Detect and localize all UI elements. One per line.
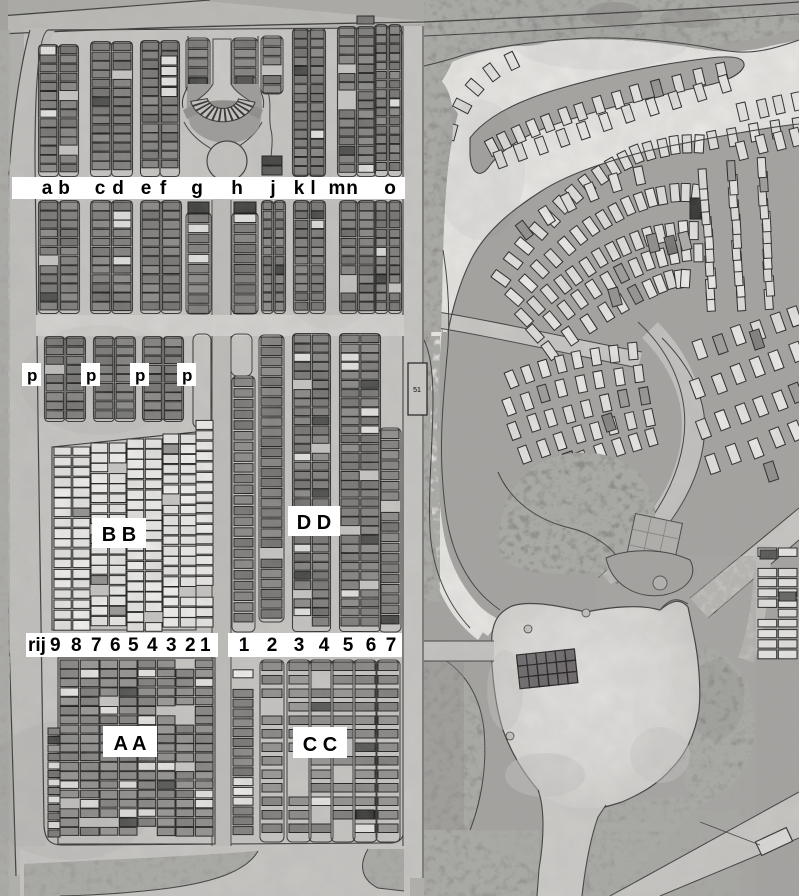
svg-text:c: c	[95, 178, 106, 199]
svg-text:51: 51	[413, 387, 421, 394]
svg-text:D D: D D	[297, 512, 331, 534]
svg-text:n: n	[346, 178, 358, 199]
svg-text:8: 8	[71, 635, 82, 656]
svg-text:6: 6	[366, 635, 377, 656]
svg-text:p: p	[86, 366, 96, 385]
svg-text:3: 3	[294, 635, 305, 656]
svg-text:p: p	[135, 366, 145, 385]
svg-text:2: 2	[267, 635, 278, 656]
svg-text:p: p	[27, 366, 37, 385]
svg-text:A A: A A	[114, 733, 147, 755]
svg-text:a: a	[42, 178, 53, 199]
svg-text:C C: C C	[303, 734, 337, 756]
svg-text:2: 2	[185, 635, 196, 656]
svg-text:6: 6	[110, 635, 121, 656]
svg-text:d: d	[112, 178, 124, 199]
svg-text:e: e	[141, 178, 152, 199]
svg-text:9: 9	[50, 635, 61, 656]
svg-text:rij: rij	[28, 635, 46, 656]
svg-text:7: 7	[91, 635, 102, 656]
svg-text:B B: B B	[102, 524, 136, 546]
svg-text:f: f	[160, 178, 167, 199]
svg-text:4: 4	[147, 635, 158, 656]
svg-text:h: h	[231, 178, 243, 199]
svg-text:m: m	[329, 178, 346, 199]
svg-text:b: b	[58, 178, 70, 199]
svg-text:7: 7	[386, 635, 397, 656]
svg-text:o: o	[384, 178, 396, 199]
svg-text:5: 5	[128, 635, 139, 656]
svg-text:4: 4	[319, 635, 330, 656]
svg-text:1: 1	[239, 635, 250, 656]
svg-text:1: 1	[200, 635, 211, 656]
svg-text:j: j	[269, 178, 275, 199]
svg-text:g: g	[191, 178, 203, 199]
svg-text:k: k	[294, 178, 305, 199]
svg-text:l: l	[310, 178, 315, 199]
svg-text:3: 3	[166, 635, 177, 656]
svg-text:p: p	[182, 366, 192, 385]
svg-text:5: 5	[343, 635, 354, 656]
